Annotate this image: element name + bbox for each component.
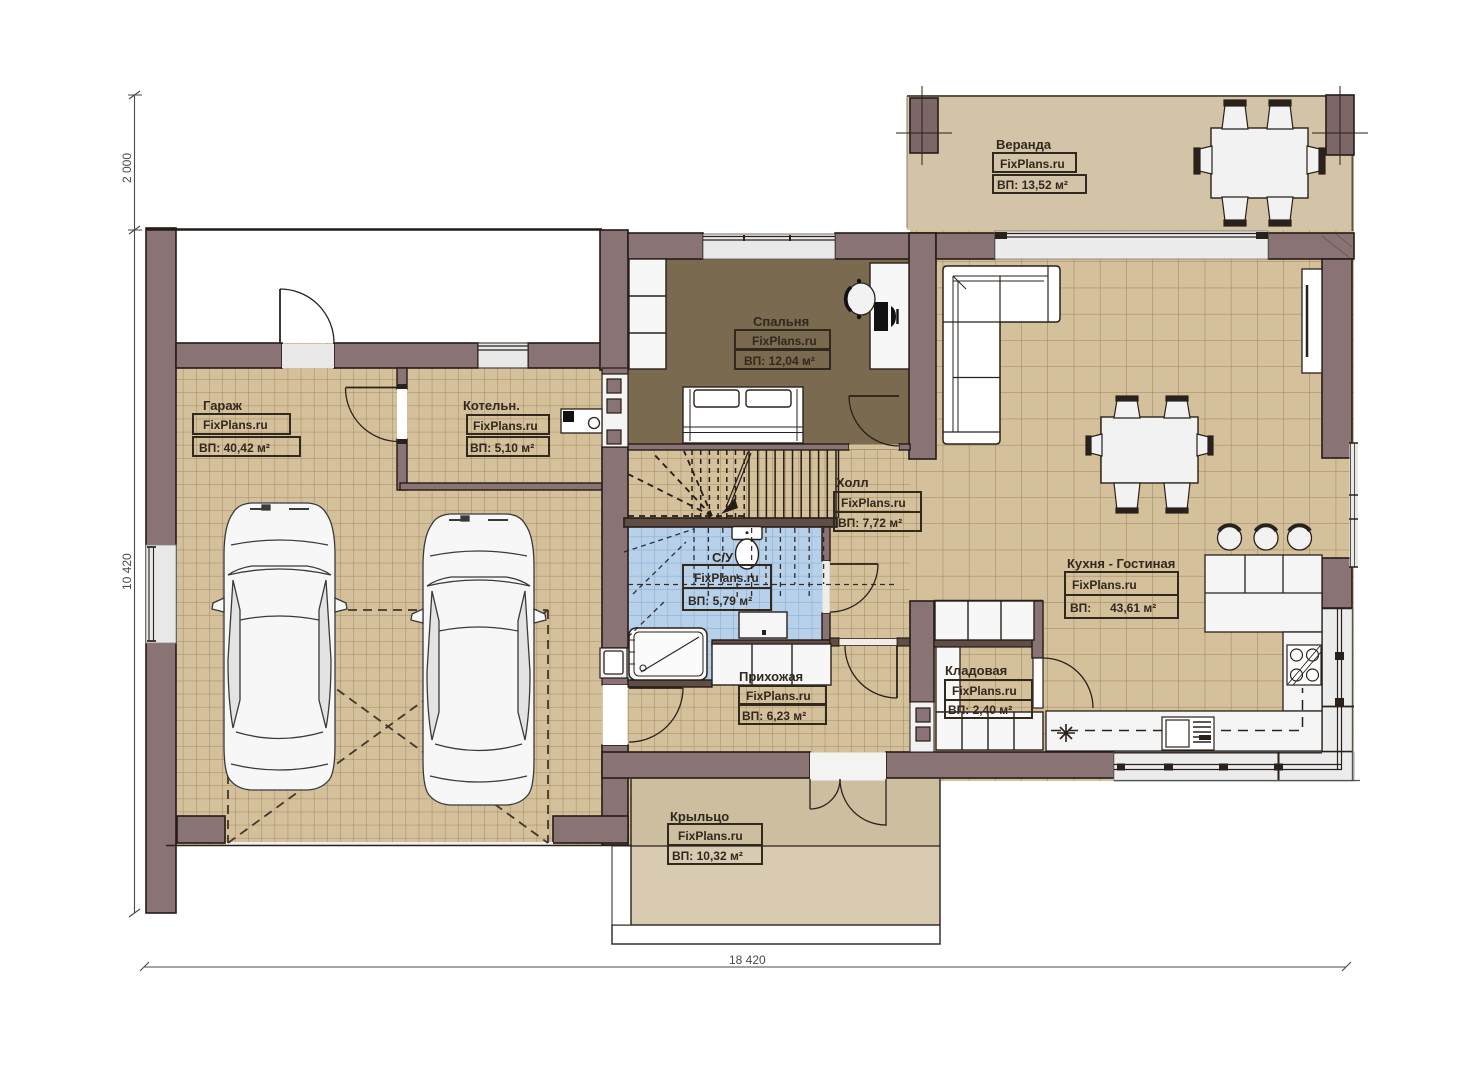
- svg-text:FixPlans.ru: FixPlans.ru: [1000, 157, 1065, 171]
- svg-text:FixPlans.ru: FixPlans.ru: [752, 334, 817, 348]
- svg-text:43,61 м²: 43,61 м²: [1110, 601, 1156, 615]
- svg-text:Веранда: Веранда: [996, 137, 1052, 152]
- svg-text:ВП: 10,32 м²: ВП: 10,32 м²: [672, 849, 743, 863]
- svg-text:ВП: 40,42 м²: ВП: 40,42 м²: [199, 441, 270, 455]
- svg-text:ВП: 2,40 м²: ВП: 2,40 м²: [948, 703, 1012, 717]
- svg-text:ВП: 5,79 м²: ВП: 5,79 м²: [688, 594, 752, 608]
- svg-text:ВП: 12,04 м²: ВП: 12,04 м²: [744, 354, 815, 368]
- svg-text:Холл: Холл: [836, 475, 869, 490]
- svg-text:FixPlans.ru: FixPlans.ru: [473, 419, 538, 433]
- svg-text:FixPlans.ru: FixPlans.ru: [841, 496, 906, 510]
- svg-text:ВП: 6,23 м²: ВП: 6,23 м²: [742, 709, 806, 723]
- svg-text:Спальня: Спальня: [753, 314, 809, 329]
- svg-text:FixPlans.ru: FixPlans.ru: [694, 571, 759, 585]
- svg-text:ВП:: ВП:: [1070, 601, 1091, 615]
- svg-text:Котельн.: Котельн.: [463, 398, 520, 413]
- svg-text:FixPlans.ru: FixPlans.ru: [678, 829, 743, 843]
- svg-text:Прихожая: Прихожая: [739, 669, 803, 684]
- svg-text:FixPlans.ru: FixPlans.ru: [952, 684, 1017, 698]
- svg-text:Кладовая: Кладовая: [945, 663, 1007, 678]
- svg-text:FixPlans.ru: FixPlans.ru: [203, 418, 268, 432]
- svg-text:Гараж: Гараж: [203, 398, 243, 413]
- svg-text:Кухня - Гостиная: Кухня - Гостиная: [1067, 556, 1175, 571]
- svg-text:18 420: 18 420: [729, 953, 766, 967]
- svg-text:Крыльцо: Крыльцо: [670, 809, 729, 824]
- svg-text:10 420: 10 420: [120, 553, 134, 590]
- svg-text:FixPlans.ru: FixPlans.ru: [746, 689, 811, 703]
- svg-text:ВП: 5,10 м²: ВП: 5,10 м²: [470, 441, 534, 455]
- svg-text:ВП: 7,72 м²: ВП: 7,72 м²: [838, 516, 902, 530]
- svg-text:С/У: С/У: [712, 550, 734, 565]
- svg-text:2 000: 2 000: [120, 153, 134, 183]
- svg-text:FixPlans.ru: FixPlans.ru: [1072, 578, 1137, 592]
- svg-text:ВП: 13,52 м²: ВП: 13,52 м²: [997, 178, 1068, 192]
